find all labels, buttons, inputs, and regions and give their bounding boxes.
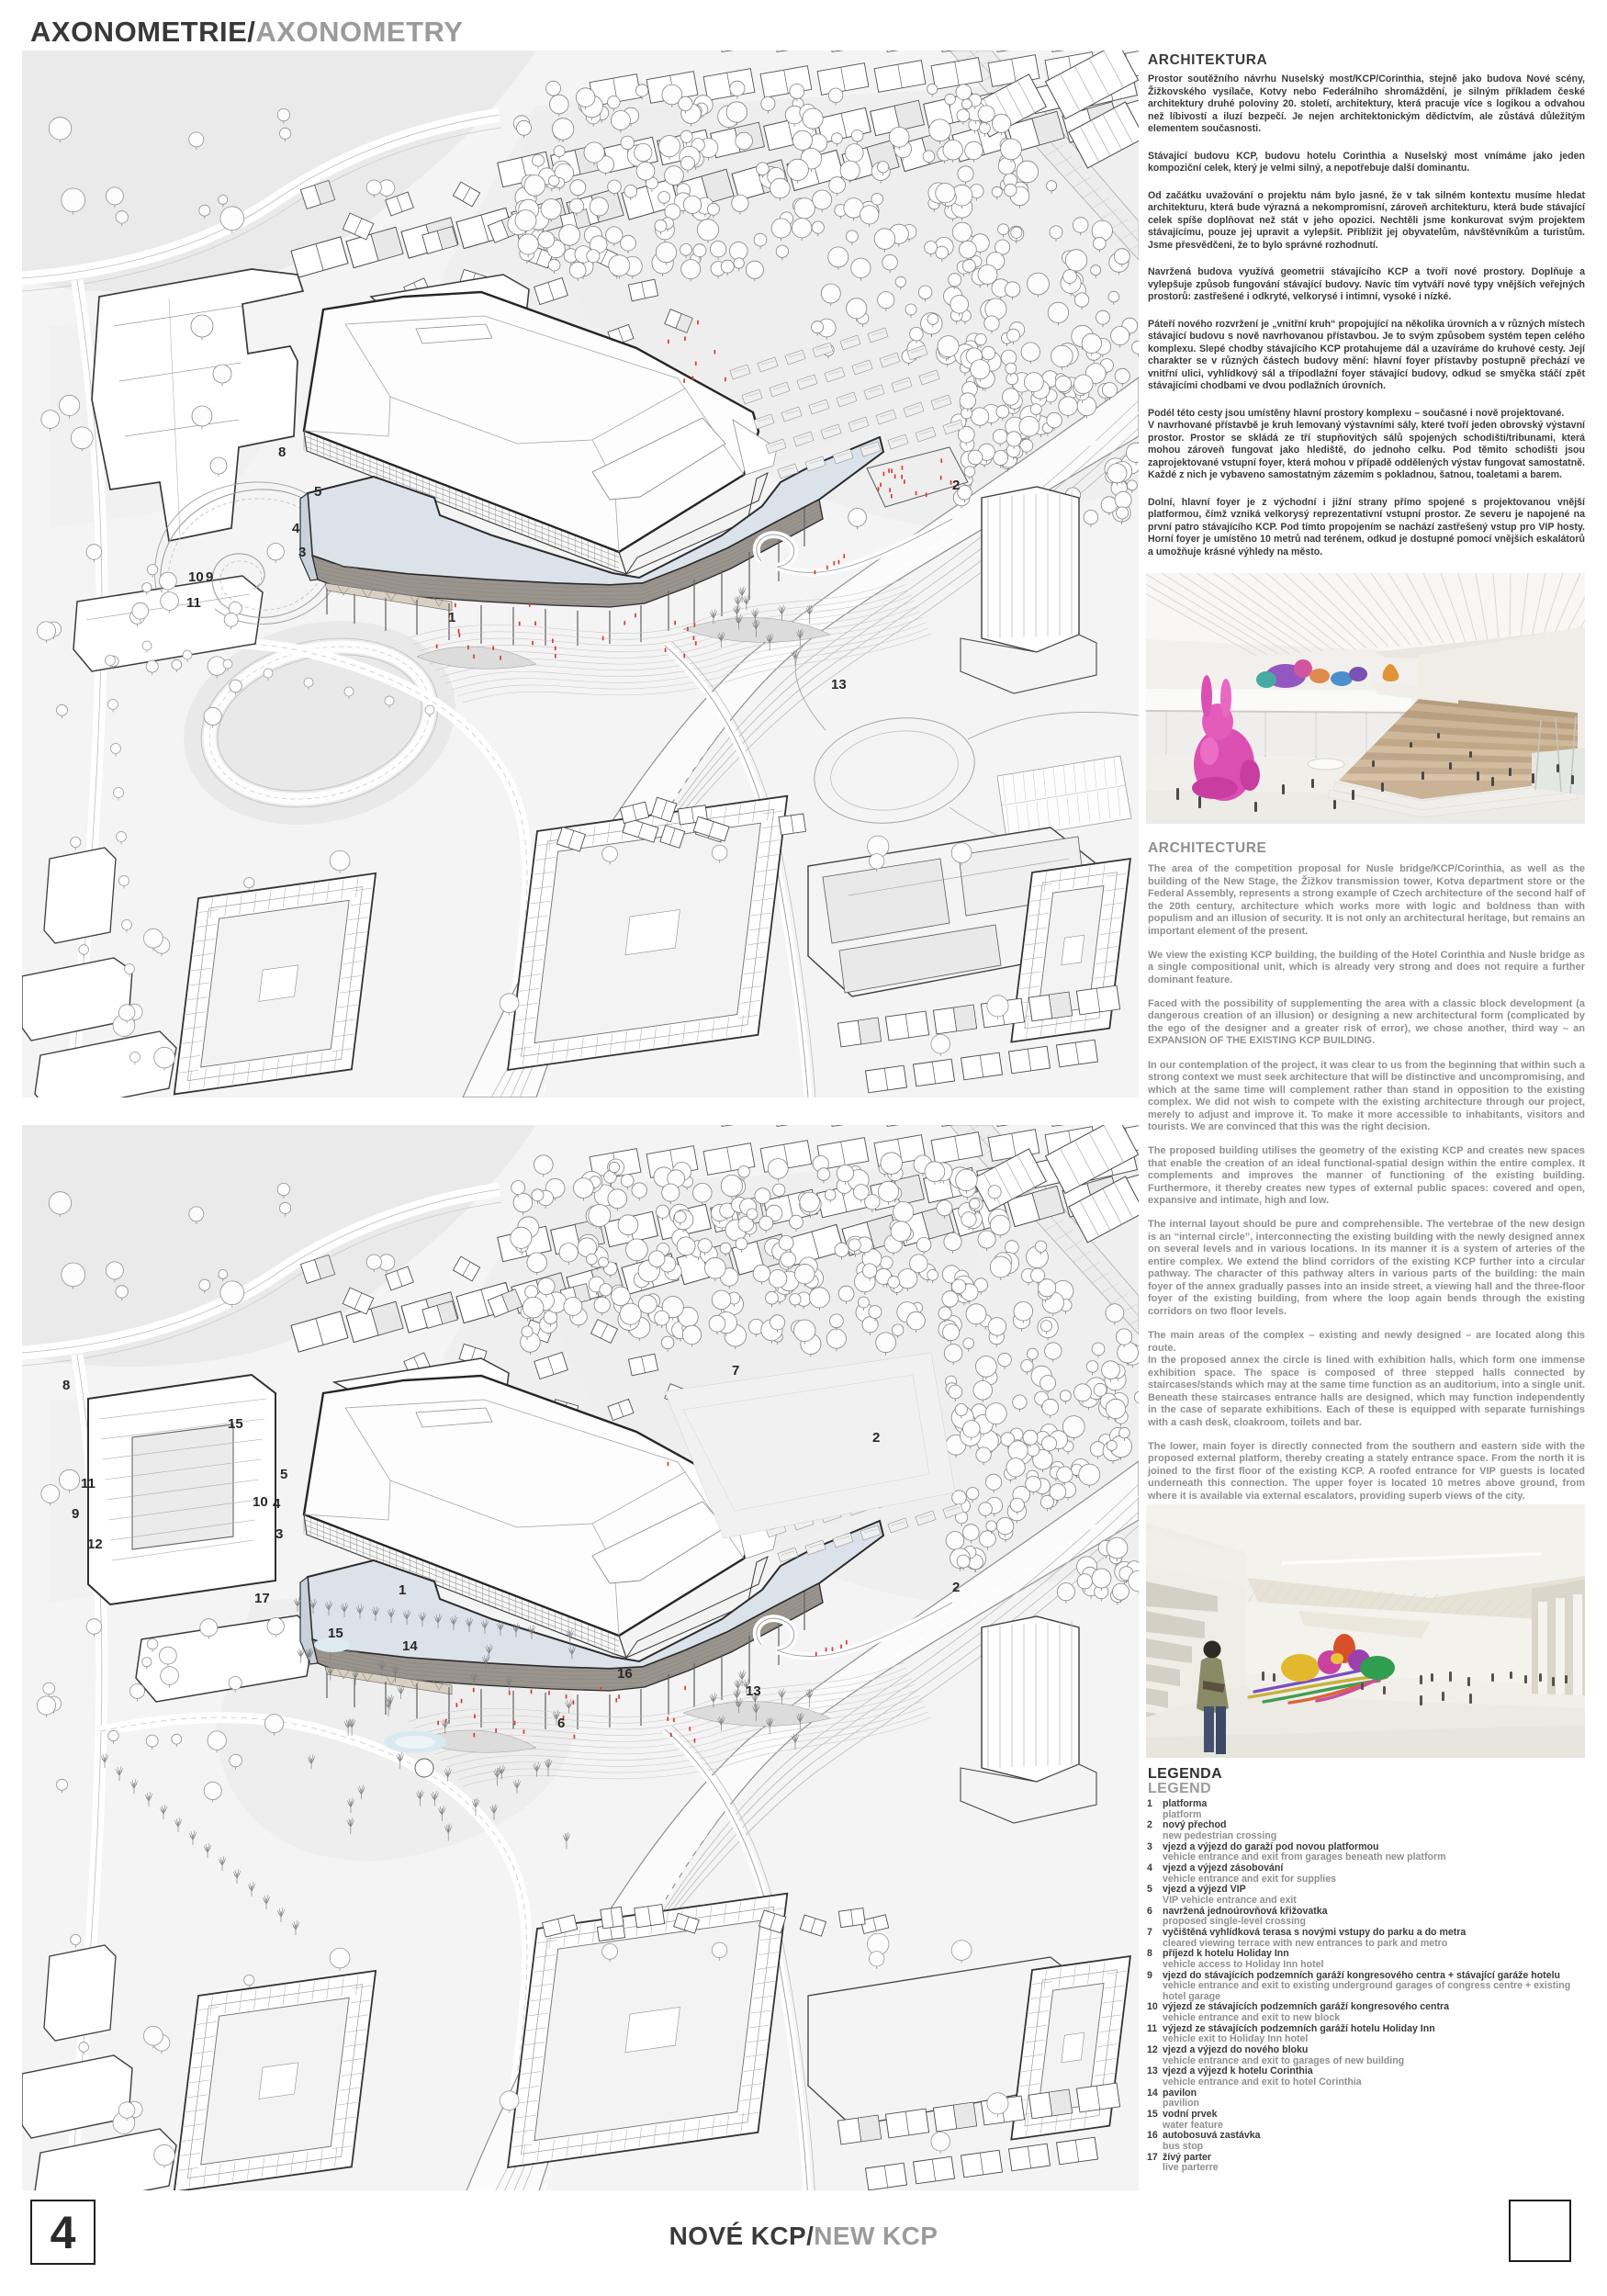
svg-text:5: 5 bbox=[280, 1467, 287, 1482]
svg-text:15: 15 bbox=[328, 1626, 343, 1641]
svg-text:17: 17 bbox=[254, 1591, 270, 1606]
svg-text:14: 14 bbox=[402, 1638, 418, 1654]
svg-text:2: 2 bbox=[952, 478, 960, 493]
svg-text:13: 13 bbox=[831, 677, 847, 692]
svg-text:15: 15 bbox=[228, 1416, 243, 1432]
svg-text:5: 5 bbox=[314, 484, 321, 500]
svg-text:13: 13 bbox=[746, 1683, 761, 1699]
svg-text:1: 1 bbox=[448, 610, 455, 625]
svg-text:6: 6 bbox=[557, 1716, 565, 1731]
svg-text:8: 8 bbox=[62, 1378, 70, 1393]
svg-text:3: 3 bbox=[275, 1526, 283, 1542]
svg-text:2: 2 bbox=[872, 1430, 880, 1446]
svg-text:2: 2 bbox=[952, 1580, 960, 1595]
svg-text:11: 11 bbox=[186, 595, 201, 611]
svg-text:4: 4 bbox=[292, 521, 300, 536]
svg-text:3: 3 bbox=[298, 545, 306, 560]
svg-text:7: 7 bbox=[732, 1363, 739, 1379]
svg-text:9: 9 bbox=[72, 1506, 79, 1522]
svg-text:16: 16 bbox=[617, 1666, 633, 1682]
svg-text:1: 1 bbox=[399, 1582, 406, 1598]
svg-text:10: 10 bbox=[188, 569, 204, 585]
svg-text:10: 10 bbox=[253, 1494, 268, 1510]
svg-text:11: 11 bbox=[81, 1476, 96, 1491]
svg-text:4: 4 bbox=[273, 1496, 281, 1512]
svg-text:9: 9 bbox=[206, 569, 213, 585]
svg-text:12: 12 bbox=[87, 1536, 103, 1552]
svg-text:8: 8 bbox=[278, 445, 286, 460]
